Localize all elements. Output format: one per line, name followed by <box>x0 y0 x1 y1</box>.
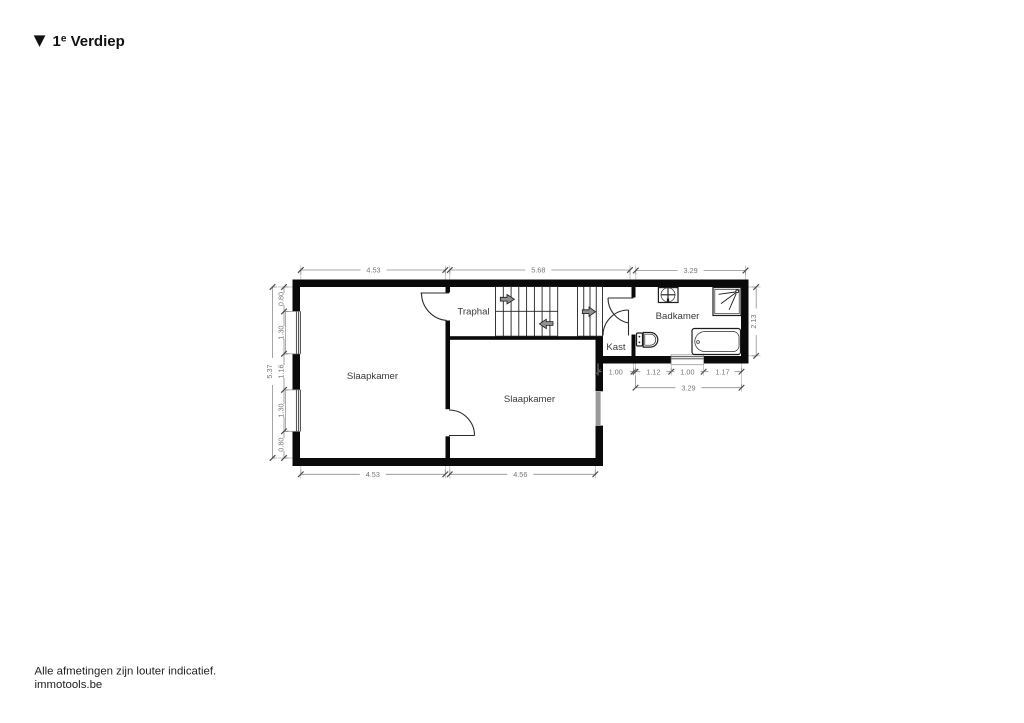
svg-text:1.16: 1.16 <box>277 364 286 378</box>
svg-text:5.68: 5.68 <box>531 266 545 275</box>
svg-text:Alle afmetingen zijn louter in: Alle afmetingen zijn louter indicatief. <box>35 666 217 678</box>
svg-text:4.56: 4.56 <box>513 470 527 479</box>
svg-text:1.17: 1.17 <box>715 367 729 376</box>
svg-text:1.30: 1.30 <box>277 325 286 339</box>
svg-text:0.80: 0.80 <box>277 437 286 451</box>
svg-text:immotools.be: immotools.be <box>35 679 103 691</box>
svg-text:2.13: 2.13 <box>749 314 758 328</box>
svg-text:1.00: 1.00 <box>680 367 694 376</box>
svg-text:Traphal: Traphal <box>457 306 489 317</box>
svg-text:4.53: 4.53 <box>366 470 380 479</box>
svg-text:1.12: 1.12 <box>646 367 660 376</box>
svg-text:1.30: 1.30 <box>277 403 286 417</box>
svg-text:1e Verdiep: 1e Verdiep <box>53 33 125 50</box>
svg-text:3.29: 3.29 <box>681 383 695 392</box>
svg-text:Kast: Kast <box>606 342 626 353</box>
svg-text:Slaapkamer: Slaapkamer <box>347 371 399 382</box>
svg-text:4.53: 4.53 <box>366 266 380 275</box>
svg-text:5.37: 5.37 <box>265 364 274 378</box>
svg-text:0.80: 0.80 <box>277 292 286 306</box>
svg-text:3.29: 3.29 <box>683 266 697 275</box>
svg-text:Slaapkamer: Slaapkamer <box>504 394 556 405</box>
svg-text:1.00: 1.00 <box>609 367 623 376</box>
svg-text:Badkamer: Badkamer <box>656 311 701 322</box>
